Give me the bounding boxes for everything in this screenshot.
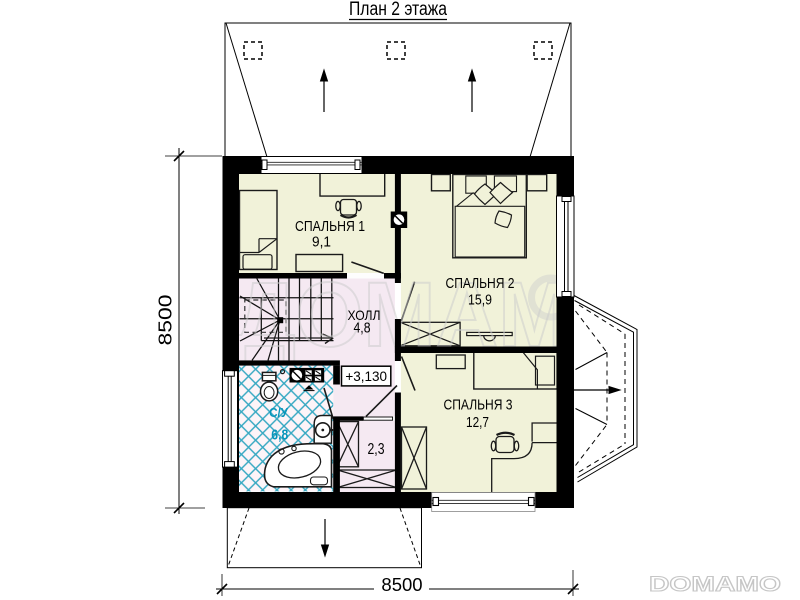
- svg-text:15,9: 15,9: [468, 293, 492, 309]
- svg-text:СПАЛЬНЯ 2: СПАЛЬНЯ 2: [446, 275, 515, 292]
- svg-text:СПАЛЬНЯ 3: СПАЛЬНЯ 3: [444, 397, 513, 414]
- svg-text:+3,130: +3,130: [345, 369, 387, 384]
- svg-text:2,3: 2,3: [368, 441, 385, 458]
- svg-text:План 2 этажа: План 2 этажа: [349, 0, 447, 20]
- svg-text:4,8: 4,8: [354, 321, 371, 337]
- svg-text:8500: 8500: [381, 574, 422, 595]
- svg-text:12,7: 12,7: [466, 415, 489, 431]
- svg-text:9,1: 9,1: [312, 235, 331, 251]
- svg-text:6,8: 6,8: [271, 428, 288, 444]
- svg-text:СПАЛЬНЯ 1: СПАЛЬНЯ 1: [295, 218, 365, 235]
- svg-text:С/У: С/У: [269, 406, 288, 420]
- svg-text:DOMAMO: DOMAMO: [649, 573, 781, 596]
- svg-text:8500: 8500: [156, 295, 176, 346]
